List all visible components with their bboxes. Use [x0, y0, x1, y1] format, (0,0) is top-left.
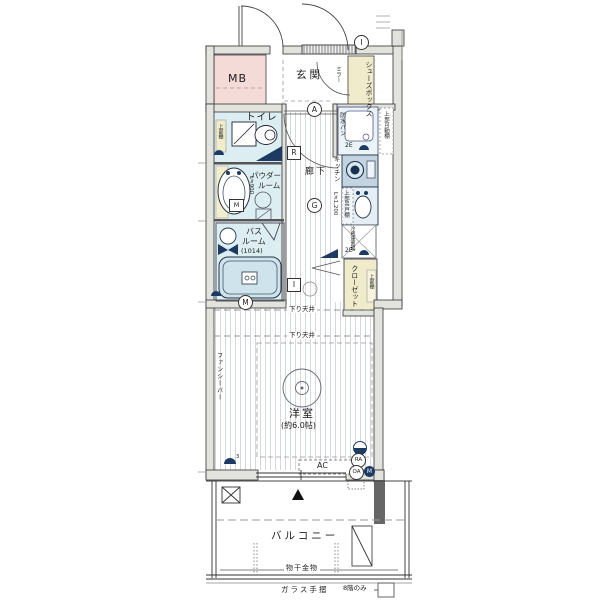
hallway-label: 廊下 — [305, 168, 327, 178]
laundry-hardware-label: 物干金物 — [284, 565, 320, 573]
genkan-label: 玄関 — [296, 70, 323, 82]
glass-railing-label: ガラス手摺 — [281, 586, 328, 594]
bath-label-1: バス — [246, 228, 262, 237]
marker-oa: OA — [349, 465, 364, 480]
laundry-outlet-label: 2E — [345, 143, 353, 150]
room-size-label: (約6.0帖) — [281, 422, 316, 431]
toilet-label: トイレ — [246, 113, 278, 123]
laundry-pan-label: 防水パン — [338, 112, 345, 136]
marker-m-dot: M — [364, 466, 375, 477]
balcony-label: バルコニー — [271, 531, 338, 543]
floor-plan: MB 玄関 シューズボックス ミラー トイレ 上部棚 パウダー ルーム L≒90… — [0, 0, 600, 600]
outlet-sup3-label: 3 — [236, 455, 239, 461]
closet-label: クローゼット — [350, 265, 358, 307]
kitchen-length-label: L≒1,200 — [332, 192, 338, 215]
fridge-outlet-label: 2E — [345, 248, 353, 255]
marker-r: R — [287, 146, 301, 160]
kitchen-label: キッチン — [332, 156, 339, 182]
lowered-ceiling-label-1: 下り天井 — [287, 306, 317, 313]
marker-g: G — [307, 198, 322, 213]
floor-note-label: 8階のみ — [343, 585, 367, 592]
floorplan-drawing — [0, 0, 600, 600]
bath-label-2: ルーム — [242, 238, 266, 247]
toilet-shelf-label: 上部棚 — [217, 124, 223, 139]
marker-i-top: I — [354, 35, 369, 50]
marker-m-bath: M — [238, 295, 253, 310]
lowered-ceiling-label-2: 下り天井 — [287, 332, 317, 339]
ac-label: AC — [317, 462, 328, 471]
exterior-ticks — [198, 163, 206, 472]
mirror-label: ミラー — [335, 66, 341, 83]
marker-m-box: M — [229, 199, 244, 212]
laundry-shelf-label: 上部可動棚 — [383, 111, 389, 139]
mb-label: MB — [228, 73, 247, 85]
bath-size-label: (1014) — [241, 248, 263, 255]
powder-counter-length: L≒900 — [248, 176, 254, 194]
shoe-box-label: シューズボックス — [350, 61, 372, 95]
fancy-bar-label: ファンシーバー — [215, 352, 222, 401]
marker-a: A — [307, 102, 322, 117]
kitchen-cupboard-label: 上部吊戸棚 — [343, 190, 349, 218]
powder-room-label-2: ルーム — [258, 182, 280, 190]
marker-i-hall: I — [287, 278, 301, 292]
room-label: 洋室 — [289, 408, 315, 420]
powder-room-label-1: パウダー — [251, 172, 281, 180]
closet-shelf-label: 上部棚 — [368, 274, 374, 289]
